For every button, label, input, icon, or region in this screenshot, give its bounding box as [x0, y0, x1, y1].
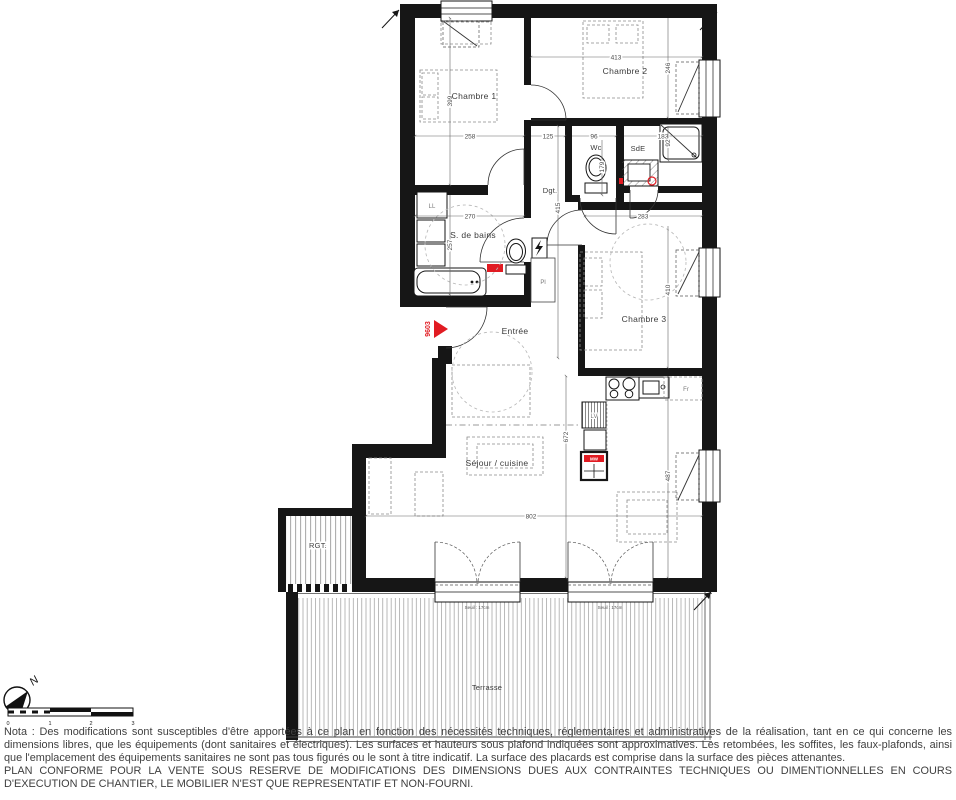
floor-plan-svg: Terrasse RGT. [0, 0, 956, 748]
walls [352, 4, 717, 592]
window-chambre2 [676, 60, 720, 117]
washing-machine-label: LL [429, 204, 436, 210]
dim-672: 672 [563, 431, 570, 442]
window-sejour [676, 450, 720, 502]
french-door-1: Seuil : 17cm [435, 542, 520, 610]
dishwasher: LV [582, 402, 606, 428]
dim-96: 96 [590, 134, 598, 141]
rgt-storage: RGT. [278, 508, 358, 592]
sde-vanity [619, 160, 658, 186]
dim-92: 92 [665, 139, 672, 147]
chambre1-label: Chambre 1 [452, 91, 497, 101]
kitchen-fixtures: LV MW Fr [581, 377, 702, 480]
sejour-label: Séjour / cuisine [466, 458, 529, 468]
dim-487: 487 [665, 470, 672, 481]
wc-label: Wc [590, 143, 601, 152]
french-door-2: Seuil : 17cm [568, 542, 653, 610]
towel-radiator [487, 264, 503, 272]
window-chambre1 [441, 1, 492, 47]
placard-label: Pl [540, 280, 545, 286]
window-chambre3 [676, 248, 720, 297]
microwave: MW [581, 452, 607, 480]
chambre3-label: Chambre 3 [622, 314, 667, 324]
chambre2-label: Chambre 2 [603, 66, 648, 76]
legal-notes: Nota : Des modifications sont susceptibl… [4, 726, 952, 791]
entry-door [446, 307, 487, 348]
dgt-label: Dgt. [543, 186, 558, 195]
plan-conforme-text: PLAN CONFORME POUR LA VENTE SOUS RESERVE… [4, 765, 952, 791]
oven [584, 430, 606, 450]
dim-270: 270 [465, 214, 476, 221]
lot-number: 9603 [425, 321, 432, 337]
dim-283: 283 [638, 214, 649, 221]
microwave-label: MW [590, 457, 599, 462]
terrace: Terrasse [286, 592, 712, 742]
lot-marker: 9603 [425, 320, 448, 338]
dim-410: 410 [665, 284, 672, 295]
dim-179: 179 [599, 161, 606, 172]
dim-258: 258 [465, 134, 476, 141]
dim-415: 415 [555, 202, 562, 213]
dim-246: 246 [665, 62, 672, 73]
north-label: N [27, 674, 41, 688]
toilet-bathroom [506, 239, 526, 274]
nota-text: Nota : Des modifications sont susceptibl… [4, 726, 952, 764]
kitchen-sink [639, 377, 669, 398]
compass: N [4, 674, 41, 713]
rgt-label: RGT. [309, 541, 327, 550]
fridge: Fr [664, 377, 702, 400]
wc-fixtures [585, 155, 607, 193]
dim-413: 413 [611, 55, 622, 62]
seuil-label: Seuil : 17cm [465, 605, 490, 610]
electrical-panel [532, 238, 547, 258]
entree-label: Entrée [502, 326, 529, 336]
fridge-label: Fr [683, 387, 689, 393]
floor-plan-page: Terrasse RGT. [0, 0, 956, 800]
entry-arrow [434, 320, 448, 338]
stove [606, 377, 639, 400]
toilet-wc [585, 155, 607, 193]
scale-bar: 0 1 2 3 [6, 708, 134, 727]
dim-257: 257 [447, 239, 454, 250]
sdb-label: S. de bains [450, 230, 496, 240]
placard: Pl [531, 258, 555, 302]
dim-802: 802 [526, 514, 537, 521]
dim-125: 125 [543, 134, 554, 141]
bathroom-fixtures: LL Pl [414, 192, 555, 302]
seuil-label: Seuil : 17cm [598, 605, 623, 610]
dishwasher-label: LV [591, 414, 598, 420]
sde-label: SdE [631, 144, 646, 153]
terrasse-label: Terrasse [472, 683, 502, 692]
